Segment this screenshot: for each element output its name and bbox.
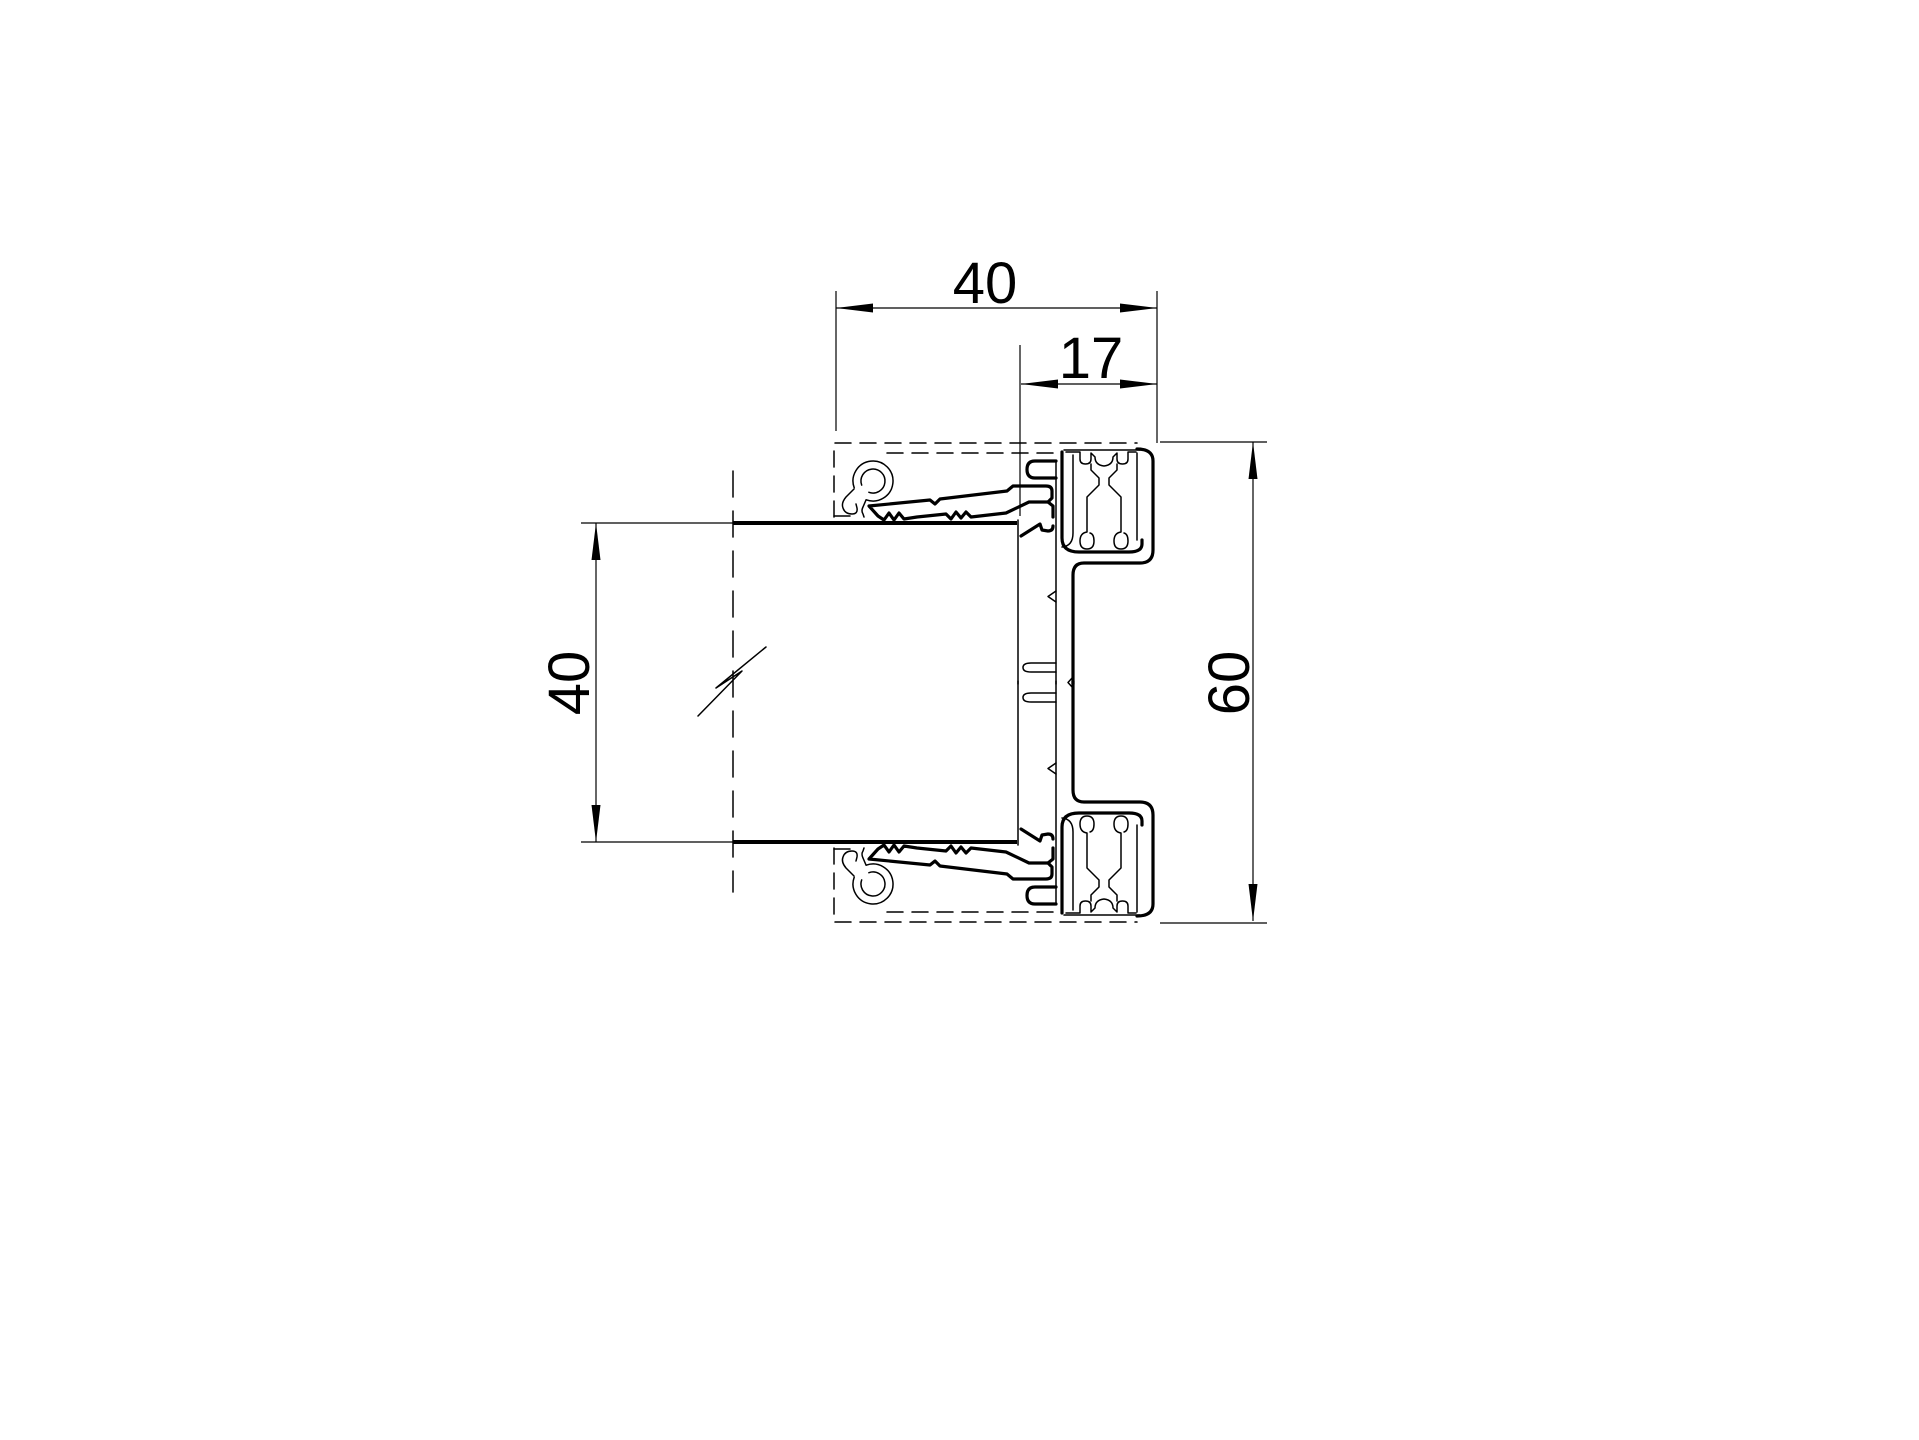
wedge-gasket: [869, 486, 1052, 520]
screw-boss-crown: [1066, 452, 1136, 466]
arrowhead-up-icon: [1249, 442, 1258, 479]
technical-drawing: 40 17 40 60: [0, 0, 1919, 1440]
clip-nose: [1021, 524, 1053, 536]
box-inner-left: [1062, 455, 1073, 547]
omega-gasket-outer: [853, 461, 893, 501]
arrowhead-down-icon: [1249, 884, 1258, 921]
dim-label-channel-opening: 40: [537, 651, 602, 716]
arrowhead-down-icon: [592, 805, 601, 842]
wedge-gasket-hook: [1048, 502, 1053, 517]
dim-label-top-width: 40: [953, 251, 1018, 316]
dim-label-rebate-depth: 17: [1059, 326, 1124, 391]
arrowhead-left-icon: [836, 304, 873, 313]
wall-clip-hook: [1023, 663, 1056, 672]
arrowhead-right-icon: [1120, 380, 1157, 389]
omega-gasket-stem: [862, 500, 866, 517]
screw-boss-left: [1080, 464, 1099, 549]
wall-nub: [1048, 591, 1056, 602]
omega-gasket-inner: [861, 469, 885, 493]
retaining-arm: [1027, 461, 1056, 478]
arrowhead-up-icon: [592, 523, 601, 560]
break-symbol: [698, 647, 766, 716]
dimension-profile-height: 60: [1197, 442, 1262, 921]
omega-gasket-foot: [842, 489, 857, 514]
arrowhead-left-icon: [1021, 380, 1058, 389]
arrowhead-right-icon: [1120, 304, 1157, 313]
dimension-channel-opening: 40: [537, 523, 602, 842]
profile-bottom-half: [581, 681, 1267, 923]
drawing-canvas: 40 17 40 60: [0, 0, 1919, 1440]
dim-label-profile-height: 60: [1197, 651, 1262, 716]
screw-boss-right: [1109, 464, 1128, 549]
profile-outer-contour: [1073, 449, 1153, 684]
box-left-wall: [1062, 452, 1142, 552]
profile-top-half: [581, 442, 1267, 684]
